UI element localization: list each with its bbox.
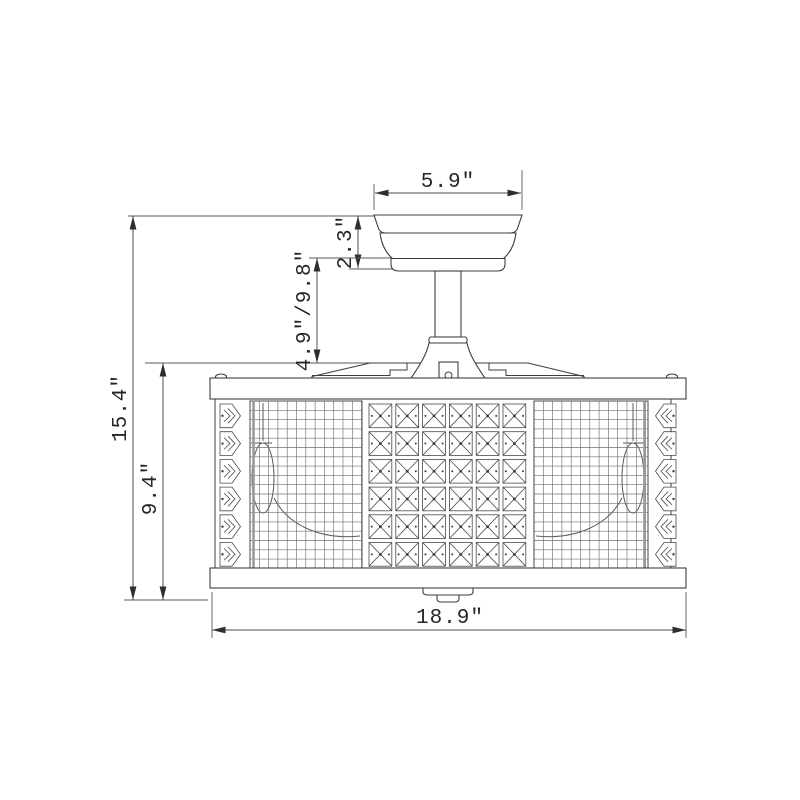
ceiling-canopy: [374, 215, 522, 271]
crystal-cell: [396, 515, 419, 539]
canopy-width-label: 5.9″: [421, 171, 475, 194]
downrod-length-label: 4.9″/9.8″: [294, 249, 317, 371]
drum-top-band: [210, 378, 686, 399]
crystal-cell: [449, 543, 472, 567]
chevron-crystal-left: [220, 543, 241, 567]
crystal-cell: [423, 543, 446, 567]
shade-height-label: 9.4″: [140, 461, 163, 515]
arrow-left-icon: [212, 627, 226, 634]
crystal-cell: [476, 459, 499, 483]
crystal-cell: [369, 459, 392, 483]
crystal-cell: [449, 515, 472, 539]
crystal-cell: [476, 487, 499, 511]
chevron-crystal-right: [656, 515, 677, 539]
arrow-down-icon: [130, 587, 137, 601]
downrod: [429, 271, 467, 343]
crystal-cell: [503, 432, 526, 456]
crystal-cell: [369, 432, 392, 456]
crystal-cell: [396, 459, 419, 483]
crystal-cell: [423, 515, 446, 539]
chevron-crystal-right: [656, 459, 677, 483]
chevron-crystal-right: [656, 432, 677, 456]
drum-shade: [210, 374, 686, 602]
bottom-finial: [423, 588, 473, 602]
crystal-cell: [449, 432, 472, 456]
crystal-cell: [369, 487, 392, 511]
crystal-cell: [476, 515, 499, 539]
fixture: [210, 215, 686, 602]
crystal-cell: [449, 487, 472, 511]
fan-dimension-diagram: 15.4″ 9.4″ 5.9″ 2.3″ 4.9″/9.8″: [0, 0, 800, 800]
crystal-cell: [503, 515, 526, 539]
crystal-cell: [503, 487, 526, 511]
crystal-cell: [449, 404, 472, 428]
crystal-cell: [396, 543, 419, 567]
chevron-crystal-right: [656, 543, 677, 567]
motor-mount: [411, 343, 486, 379]
crystal-grid-panel: [369, 404, 526, 566]
crystal-cell: [369, 515, 392, 539]
dimension-canopy-width: 5.9″: [374, 170, 522, 210]
arrow-down-icon: [160, 587, 167, 601]
crystal-cell: [396, 432, 419, 456]
crystal-cell: [423, 432, 446, 456]
crystal-cell: [396, 404, 419, 428]
dimension-total-height: 15.4″: [110, 216, 374, 600]
crystal-cell: [369, 543, 392, 567]
arrow-up-icon: [160, 363, 167, 377]
crystal-cell: [503, 459, 526, 483]
crystal-cell: [423, 404, 446, 428]
chevron-crystal-left: [220, 515, 241, 539]
arrow-up-icon: [130, 216, 137, 230]
crystal-cell: [476, 543, 499, 567]
canopy-height-label: 2.3″: [335, 215, 358, 269]
chevron-crystal-right: [656, 404, 677, 428]
crystal-cell: [476, 404, 499, 428]
crystal-cell: [449, 459, 472, 483]
total-height-label: 15.4″: [110, 374, 133, 442]
edge-crystal-columns: [220, 404, 676, 566]
crystal-cell: [503, 543, 526, 567]
arrow-left-icon: [375, 190, 389, 197]
chevron-crystal-right: [656, 487, 677, 511]
crystal-cell: [503, 404, 526, 428]
crystal-cell: [396, 487, 419, 511]
crystal-cell: [423, 459, 446, 483]
chevron-crystal-left: [220, 404, 241, 428]
crystal-cell: [476, 432, 499, 456]
crystal-cell: [423, 487, 446, 511]
arrow-right-icon: [508, 190, 522, 197]
crystal-cell: [369, 404, 392, 428]
diagram-canvas: 15.4″ 9.4″ 5.9″ 2.3″ 4.9″/9.8″: [0, 0, 800, 800]
shade-width-label: 18.9″: [416, 607, 484, 630]
chevron-crystal-left: [220, 459, 241, 483]
arrow-right-icon: [673, 627, 687, 634]
drum-bottom-band: [210, 568, 686, 588]
chevron-crystal-left: [220, 432, 241, 456]
chevron-crystal-left: [220, 487, 241, 511]
